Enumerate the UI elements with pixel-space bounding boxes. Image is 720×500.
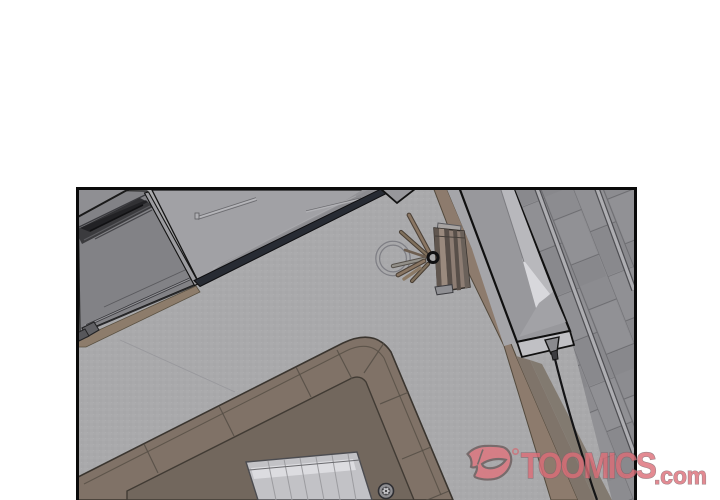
svg-text:TOOMICS: TOOMICS	[521, 445, 656, 486]
svg-text:.com: .com	[654, 463, 707, 490]
